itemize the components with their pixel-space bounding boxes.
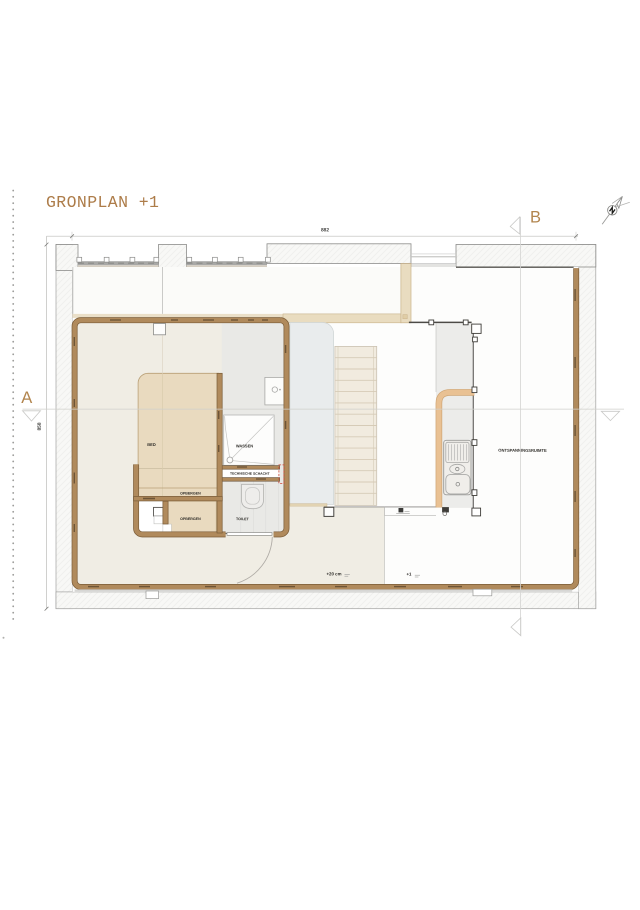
svg-text:B: B [530, 209, 541, 227]
svg-text:BED: BED [147, 442, 156, 447]
svg-text:882: 882 [321, 227, 329, 233]
svg-text:GRONPLAN +1: GRONPLAN +1 [46, 193, 159, 212]
svg-text:858: 858 [37, 422, 43, 430]
svg-text:OPBERGEN: OPBERGEN [180, 491, 201, 495]
svg-text:WASSEN: WASSEN [236, 443, 253, 448]
svg-text:+1: +1 [406, 572, 412, 577]
svg-text:TECHNISCHE SCHACHT: TECHNISCHE SCHACHT [230, 472, 271, 476]
svg-text:OPBERGEN: OPBERGEN [180, 517, 201, 521]
svg-text:A: A [21, 389, 32, 407]
svg-text:TOILET: TOILET [236, 517, 250, 521]
svg-text:ONTSPANNINGSRUIMTE: ONTSPANNINGSRUIMTE [498, 448, 547, 453]
svg-text:+20 cm: +20 cm [326, 571, 341, 576]
